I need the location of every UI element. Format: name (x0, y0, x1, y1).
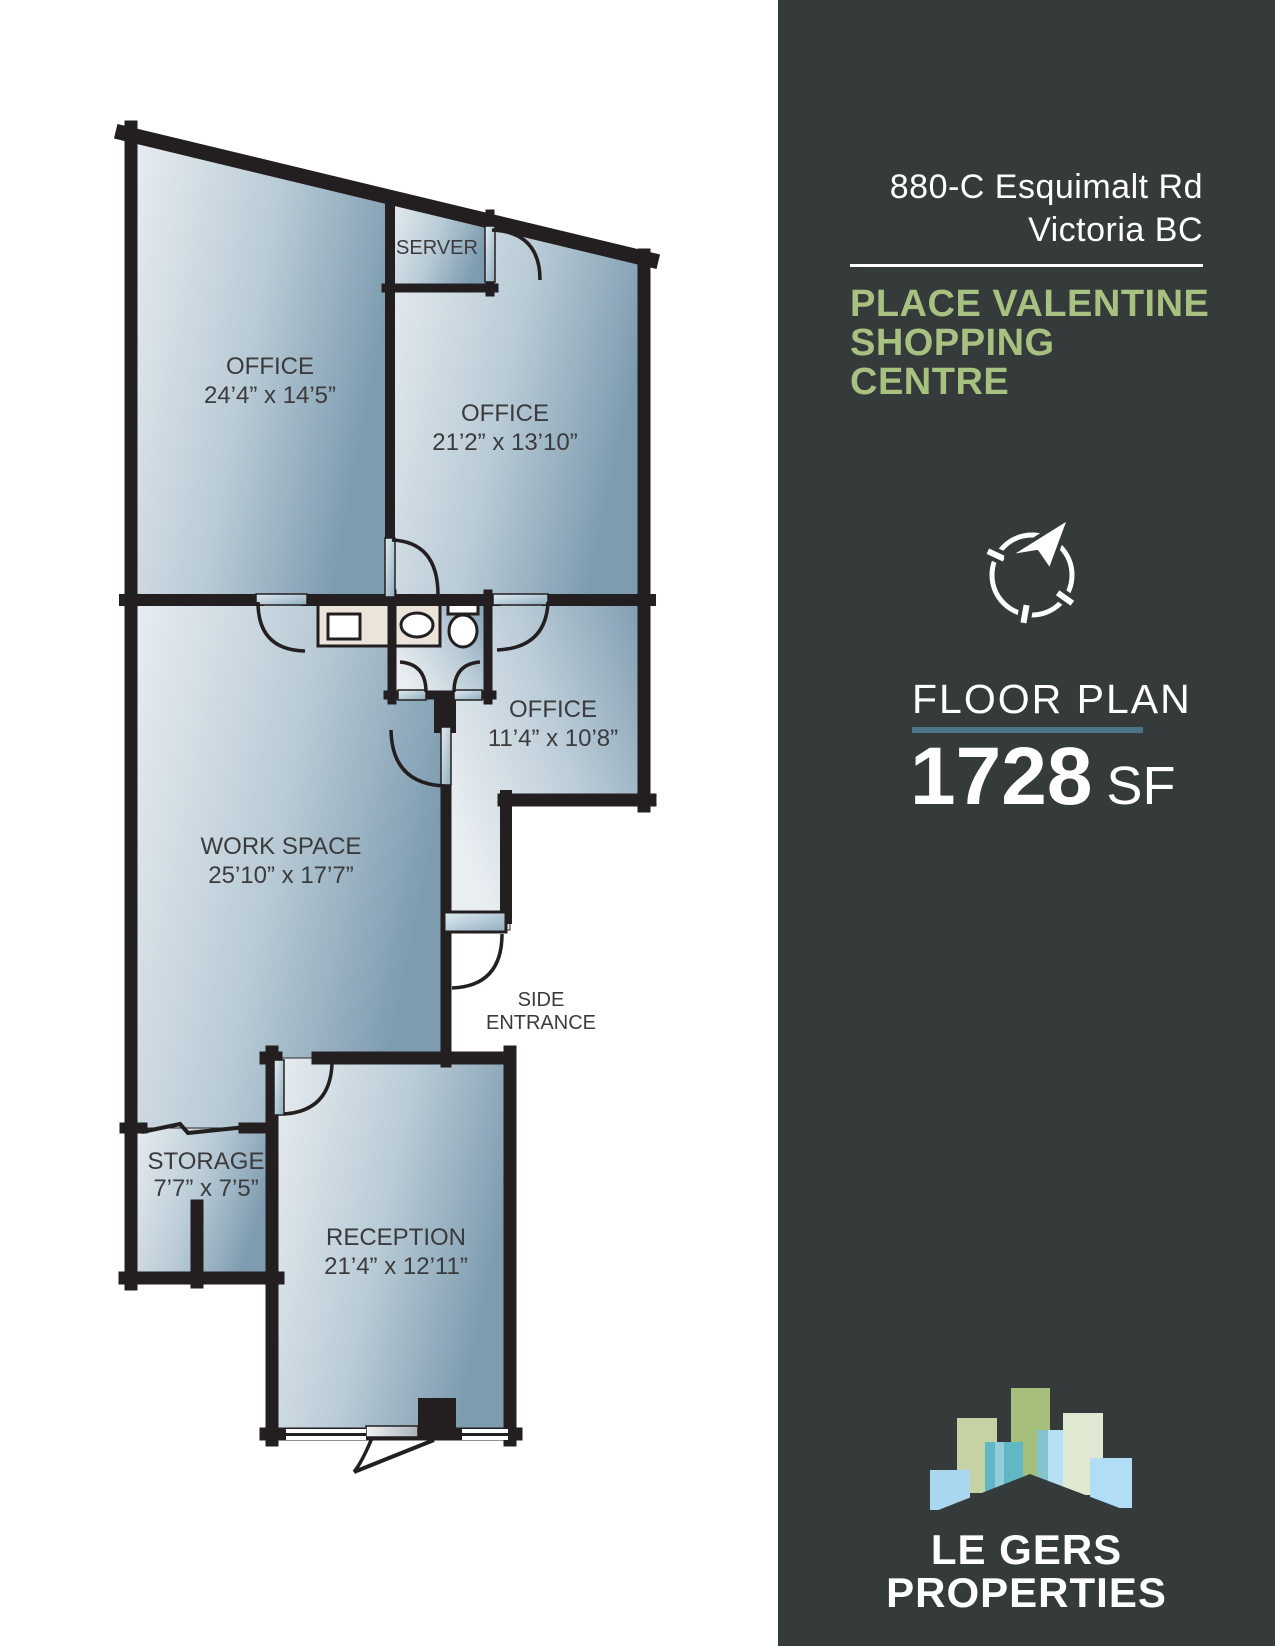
label-office-left-name: OFFICE (226, 353, 314, 380)
floor-plan: OFFICE 24’4” x 14’5” OFFICE 21’2” x 13’1… (0, 0, 778, 1646)
label-side-entrance-1: SIDE (518, 989, 565, 1011)
label-storage-name: STORAGE (148, 1148, 265, 1175)
floor-plan-label: FLOOR PLAN (912, 676, 1192, 723)
brand-line1: LE GERS (778, 1528, 1275, 1571)
divider-rule (850, 264, 1203, 267)
compass-needle (1006, 517, 1070, 571)
label-workspace-dims: 25’10” x 17’7” (208, 862, 353, 889)
area-value: 1728 (910, 730, 1092, 824)
label-side-entrance-2: ENTRANCE (486, 1012, 596, 1034)
toilet-bowl (449, 615, 477, 647)
area-unit: SF (1106, 755, 1175, 817)
label-server: SERVER (396, 237, 478, 259)
entrance-wall-block (418, 1398, 456, 1438)
property-name-line2: SHOPPING CENTRE (850, 324, 1215, 402)
label-reception-name: RECEPTION (326, 1224, 466, 1251)
brand-line2: PROPERTIES (778, 1571, 1275, 1614)
info-sidebar: 880-C Esquimalt Rd Victoria BC PLACE VAL… (778, 0, 1275, 1646)
label-office-right-dims: 21’2” x 13’10” (432, 429, 577, 456)
kitchen-sink (328, 614, 360, 639)
property-name: PLACE VALENTINE SHOPPING CENTRE (850, 285, 1215, 402)
label-office-right-name: OFFICE (461, 400, 549, 427)
property-address: 880-C Esquimalt Rd Victoria BC (828, 166, 1203, 252)
label-workspace-name: WORK SPACE (201, 833, 362, 860)
side-entrance-door (444, 912, 506, 988)
area-figure: 1728 SF (910, 730, 1175, 824)
brand-name: LE GERS PROPERTIES (778, 1528, 1275, 1614)
washroom-sink (401, 613, 433, 637)
label-storage-dims: 7’7” x 7’5” (153, 1175, 258, 1202)
address-line2: Victoria BC (828, 209, 1203, 252)
label-office-small-name: OFFICE (509, 696, 597, 723)
address-line1: 880-C Esquimalt Rd (828, 166, 1203, 209)
brand-logo (926, 1380, 1146, 1520)
fixtures (318, 602, 478, 647)
compass-icon (982, 515, 1092, 625)
label-office-left-dims: 24’4” x 14’5” (204, 382, 336, 409)
label-reception-dims: 21’4” x 12’11” (324, 1253, 468, 1280)
label-office-small-dims: 11’4” x 10’8” (488, 725, 618, 752)
property-name-line1: PLACE VALENTINE (850, 285, 1215, 324)
